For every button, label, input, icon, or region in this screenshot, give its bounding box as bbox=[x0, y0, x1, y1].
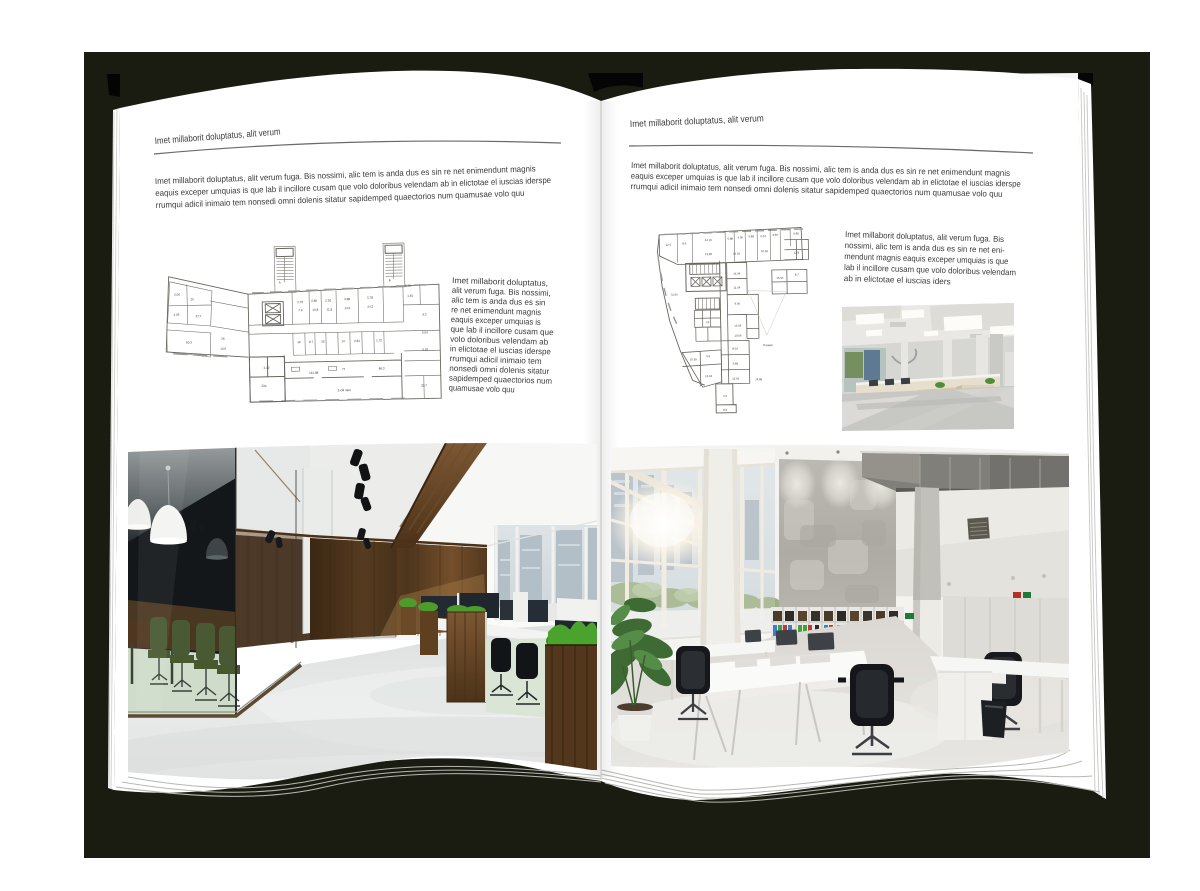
svg-text:Размер: Размер bbox=[763, 343, 773, 347]
svg-text:14.5: 14.5 bbox=[344, 306, 350, 310]
svg-text:1.45: 1.45 bbox=[407, 294, 413, 298]
svg-text:14.86: 14.86 bbox=[755, 377, 763, 381]
svg-text:5.04: 5.04 bbox=[422, 330, 428, 334]
svg-text:15.04: 15.04 bbox=[705, 374, 713, 378]
svg-text:1.72: 1.72 bbox=[376, 338, 382, 342]
svg-text:44.16: 44.16 bbox=[705, 238, 713, 242]
svg-text:10.6: 10.6 bbox=[220, 347, 226, 351]
svg-text:5.88: 5.88 bbox=[748, 234, 754, 238]
svg-text:14.04: 14.04 bbox=[733, 272, 741, 276]
svg-text:12.04: 12.04 bbox=[732, 377, 740, 381]
svg-text:60.3: 60.3 bbox=[186, 340, 192, 344]
svg-text:77: 77 bbox=[342, 367, 346, 371]
svg-text:8.6: 8.6 bbox=[682, 241, 686, 245]
svg-text:26: 26 bbox=[321, 340, 325, 344]
svg-text:4.9: 4.9 bbox=[723, 394, 727, 398]
svg-text:11.04: 11.04 bbox=[734, 286, 741, 290]
svg-text:2.06: 2.06 bbox=[174, 293, 180, 297]
svg-text:8.6: 8.6 bbox=[723, 408, 727, 412]
svg-text:30.7: 30.7 bbox=[421, 383, 427, 387]
svg-text:2.84: 2.84 bbox=[354, 339, 360, 343]
svg-text:15.04: 15.04 bbox=[733, 252, 741, 256]
svg-text:2.42: 2.42 bbox=[264, 366, 270, 370]
svg-text:9.06: 9.06 bbox=[735, 302, 741, 306]
svg-text:8.7: 8.7 bbox=[795, 273, 799, 277]
svg-text:72.04: 72.04 bbox=[671, 293, 679, 297]
svg-text:24.2: 24.2 bbox=[367, 305, 373, 309]
svg-text:Б: Б bbox=[389, 278, 391, 282]
svg-text:2.75: 2.75 bbox=[297, 300, 303, 304]
svg-text:4.90: 4.90 bbox=[737, 235, 743, 239]
svg-text:16: 16 bbox=[297, 340, 301, 344]
svg-text:16: 16 bbox=[706, 320, 710, 324]
svg-text:10.06: 10.06 bbox=[734, 334, 742, 338]
svg-text:3.88: 3.88 bbox=[344, 297, 350, 301]
svg-text:14.06: 14.06 bbox=[734, 324, 742, 328]
svg-text:10.55: 10.55 bbox=[690, 357, 698, 361]
svg-text:5.5: 5.5 bbox=[706, 354, 710, 358]
svg-text:4.06: 4.06 bbox=[173, 313, 179, 317]
svg-text:37.7: 37.7 bbox=[196, 314, 202, 318]
svg-text:12.6: 12.6 bbox=[666, 243, 672, 247]
svg-text:26: 26 bbox=[221, 337, 225, 341]
svg-text:5.88: 5.88 bbox=[727, 237, 733, 241]
svg-text:2.55: 2.55 bbox=[772, 233, 778, 237]
svg-text:15.04: 15.04 bbox=[776, 276, 784, 280]
svg-text:13.86: 13.86 bbox=[705, 252, 713, 256]
svg-text:8.7: 8.7 bbox=[309, 340, 314, 344]
svg-text:23a: 23a bbox=[261, 384, 266, 388]
svg-text:14: 14 bbox=[341, 339, 345, 343]
svg-text:6.85: 6.85 bbox=[733, 362, 739, 366]
svg-text:5.78: 5.78 bbox=[405, 284, 411, 288]
svg-text:7.9: 7.9 bbox=[298, 308, 303, 312]
svg-text:2.30: 2.30 bbox=[325, 298, 331, 302]
svg-text:25: 25 bbox=[190, 297, 194, 301]
svg-text:142.88: 142.88 bbox=[309, 371, 319, 375]
svg-text:10.55: 10.55 bbox=[761, 249, 769, 253]
svg-text:10.8: 10.8 bbox=[312, 308, 318, 312]
svg-text:A: A bbox=[279, 280, 281, 284]
svg-text:6.85: 6.85 bbox=[793, 232, 799, 236]
svg-text:8.04: 8.04 bbox=[732, 347, 738, 351]
svg-text:9.2: 9.2 bbox=[422, 312, 427, 316]
svg-text:2-oй зал: 2-oй зал bbox=[337, 388, 350, 392]
svg-text:12.8: 12.8 bbox=[794, 250, 800, 254]
svg-text:86.3: 86.3 bbox=[379, 366, 385, 370]
svg-text:11.8: 11.8 bbox=[327, 307, 333, 311]
svg-text:2.80: 2.80 bbox=[311, 299, 317, 303]
svg-text:5.64: 5.64 bbox=[760, 234, 766, 238]
svg-text:5.43: 5.43 bbox=[422, 347, 428, 351]
svg-text:5.78: 5.78 bbox=[367, 296, 373, 300]
